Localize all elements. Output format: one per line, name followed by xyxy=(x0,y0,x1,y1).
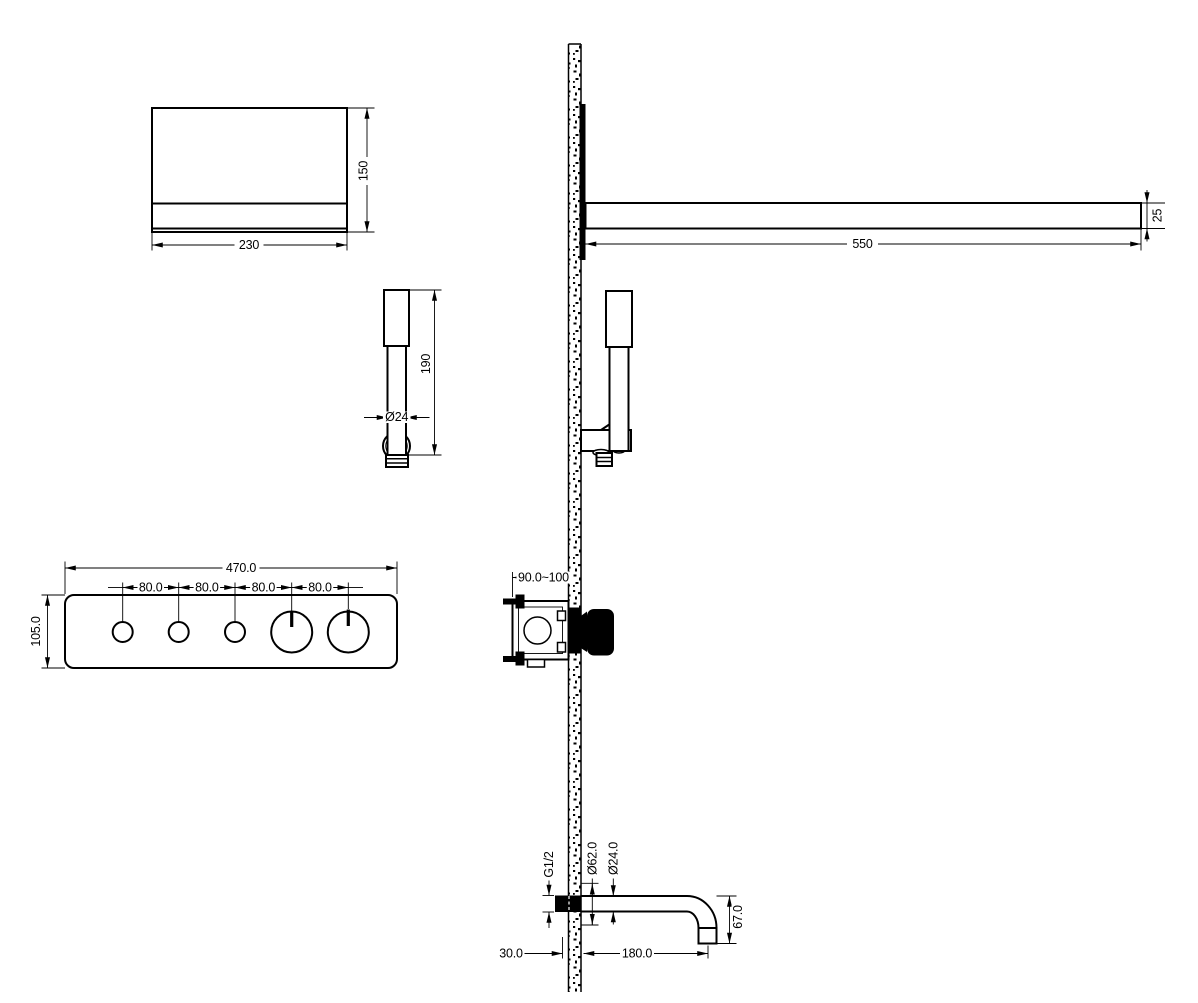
hand-shower-head-side xyxy=(606,291,632,347)
dim-shower-head-width: 230 xyxy=(152,232,347,252)
hand-shower-head xyxy=(384,290,409,346)
dim-arm-length: 550 xyxy=(586,229,1142,251)
dim-label-panel-width: 470.0 xyxy=(226,561,257,575)
shower-head-front-view: 150 230 xyxy=(152,108,375,252)
valve-flange-bottom xyxy=(516,652,525,666)
valve-knob xyxy=(587,609,614,656)
inlet-cap-side xyxy=(597,453,613,466)
wall-section xyxy=(569,44,582,992)
control-panel-front-view: 470.0 80.0 80.0 80.0 80.0 xyxy=(29,561,397,668)
dim-label-spacing-1: 80.0 xyxy=(139,581,163,595)
hand-shower-handle xyxy=(388,346,407,455)
hand-shower-inlet-cap xyxy=(386,455,408,467)
hand-shower-side-view xyxy=(581,291,632,466)
valve-bottom-tab xyxy=(528,660,545,668)
valve-clip-top xyxy=(558,611,566,621)
dim-label-spacing-3: 80.0 xyxy=(252,581,276,595)
dim-arm-thickness: 25 xyxy=(1141,190,1165,242)
valve-inlet-pipe-top xyxy=(503,599,517,605)
dim-hand-shower-diameter: Ø24 xyxy=(364,410,430,424)
bath-spout-side-view: G1/2 Ø62.0 Ø24.0 30.0 xyxy=(499,839,745,961)
dim-spout-thread: G1/2 xyxy=(542,849,556,929)
dim-hand-shower-length: 190 xyxy=(408,290,442,455)
dim-label-spout-wall-inset: 30.0 xyxy=(499,947,523,961)
dim-label-arm-thickness: 25 xyxy=(1151,209,1165,223)
valve-through-wall xyxy=(569,608,582,654)
shower-arm-side-view: 550 25 xyxy=(580,104,1166,260)
dim-valve-embed-depth: 90.0~100 xyxy=(513,571,571,598)
valve-clip-bottom xyxy=(558,643,566,653)
valve-stem xyxy=(582,612,588,653)
dim-label-spout-drop-height: 67.0 xyxy=(731,905,745,929)
dim-label-hand-shower-length: 190 xyxy=(419,354,433,375)
dim-spout-drop-height: 67.0 xyxy=(717,896,746,944)
dim-label-shower-head-width: 230 xyxy=(239,238,260,252)
dim-panel-height: 105.0 xyxy=(29,595,65,668)
valve-flange-top xyxy=(516,595,525,609)
dim-label-shower-head-height: 150 xyxy=(357,161,371,182)
dim-panel-width: 470.0 xyxy=(65,561,397,594)
dim-label-arm-length: 550 xyxy=(852,237,873,251)
shower-head-face xyxy=(152,108,347,232)
spout-elbow-inner xyxy=(687,912,699,929)
dim-label-spacing-4: 80.0 xyxy=(308,581,332,595)
dim-label-spout-flange-diameter: Ø62.0 xyxy=(585,842,599,875)
dim-spout-reach: 180.0 xyxy=(584,946,709,961)
dim-label-spout-pipe-diameter: Ø24.0 xyxy=(606,842,620,875)
arm-wall-plate xyxy=(580,104,586,260)
shower-arm-bar xyxy=(586,203,1142,229)
spout-wall-connector xyxy=(555,896,581,913)
concealed-valve-side-view: 90.0~100 xyxy=(503,571,614,668)
hand-shower-front-view: 190 Ø24 xyxy=(364,290,442,467)
drawing-canvas: 150 230 550 25 xyxy=(0,0,1198,1003)
dim-spout-wall-inset: 30.0 xyxy=(499,937,562,961)
wall-hatch xyxy=(569,44,582,992)
dim-label-valve-embed-depth: 90.0~100 xyxy=(518,571,569,585)
hand-shower-handle-side xyxy=(610,347,629,451)
dim-label-spout-reach: 180.0 xyxy=(622,947,653,961)
valve-cartridge xyxy=(524,617,551,644)
dim-label-hand-shower-diameter: Ø24 xyxy=(385,410,408,424)
dim-shower-head-height: 150 xyxy=(347,108,375,232)
technical-drawing-sheet: 150 230 550 25 xyxy=(0,0,1198,1003)
valve-inlet-pipe-bottom xyxy=(503,656,517,662)
control-panel-plate xyxy=(65,595,397,668)
spout-tip xyxy=(699,928,717,944)
dim-label-spout-thread: G1/2 xyxy=(542,851,556,878)
dim-label-panel-height: 105.0 xyxy=(29,616,43,647)
dim-label-spacing-2: 80.0 xyxy=(195,581,219,595)
